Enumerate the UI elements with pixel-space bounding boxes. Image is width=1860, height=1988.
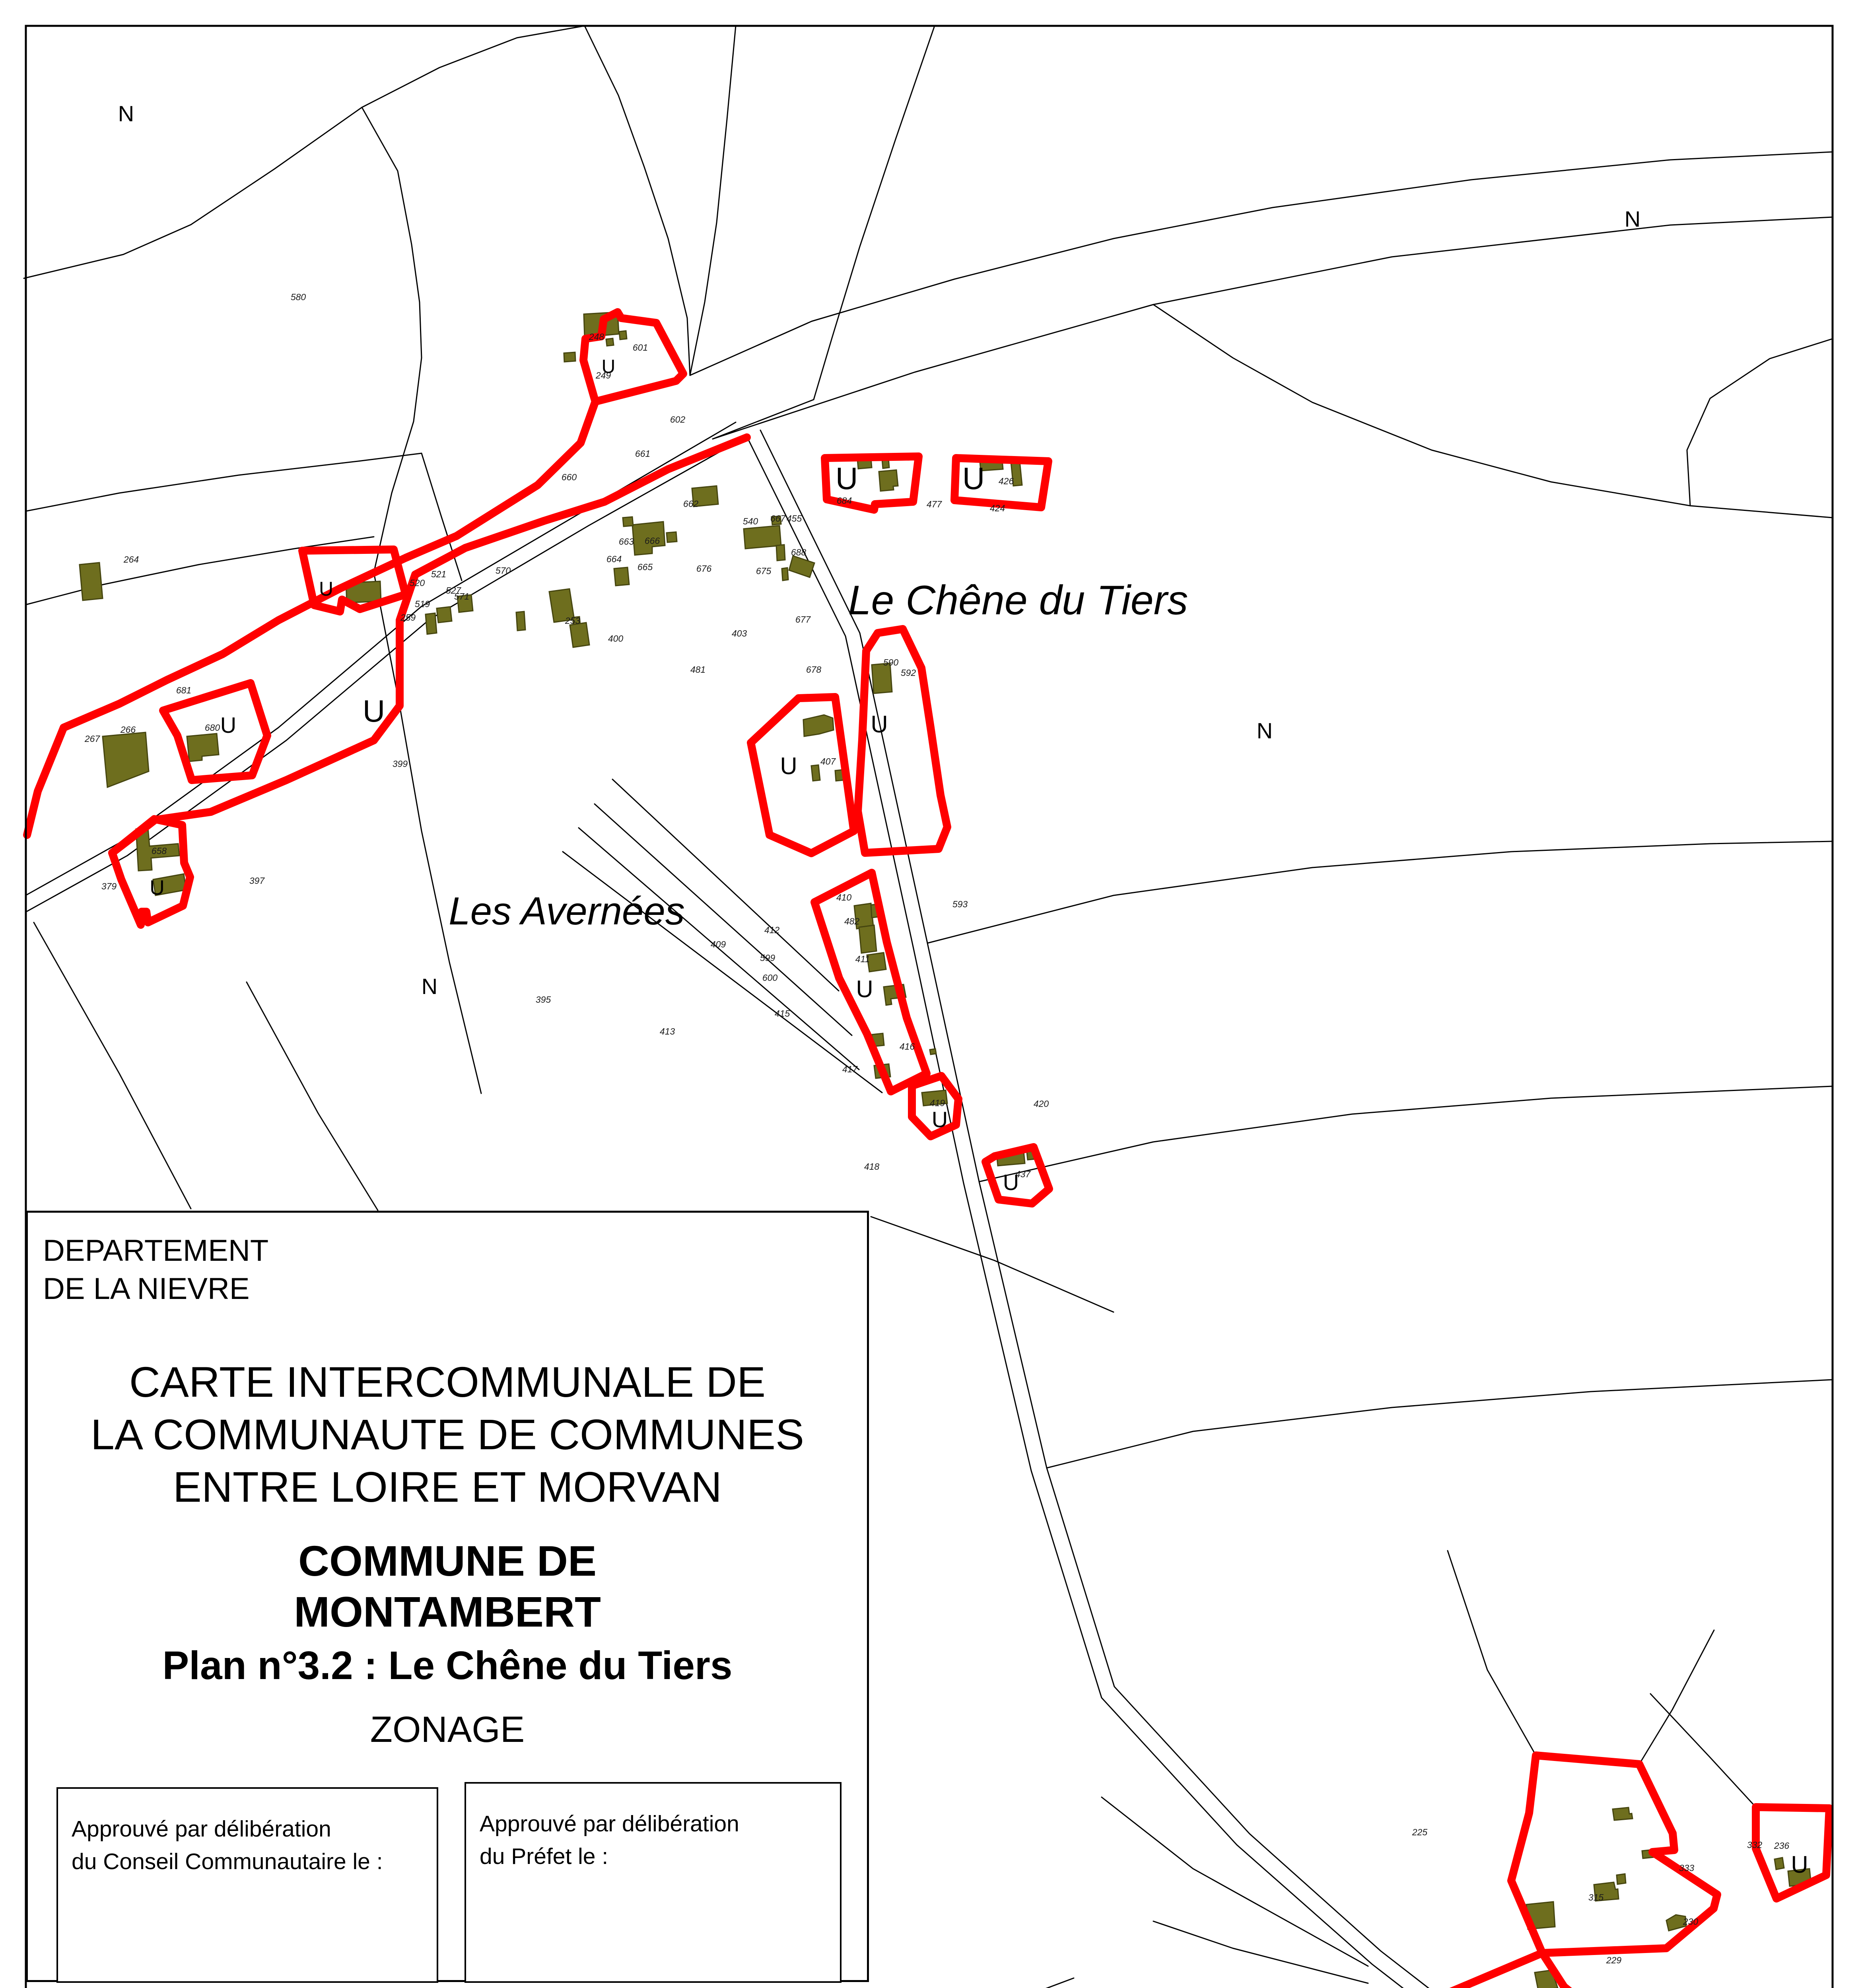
parcel-number: 267 bbox=[84, 734, 101, 744]
building bbox=[614, 567, 629, 586]
parcel-line bbox=[1650, 1694, 1756, 1807]
building bbox=[859, 925, 877, 953]
parcel-number: 412 bbox=[764, 925, 780, 935]
parcel-number: 665 bbox=[637, 562, 653, 572]
parcel-number: 678 bbox=[806, 664, 822, 675]
parcel-line bbox=[27, 453, 422, 511]
parcel-number: 570 bbox=[496, 565, 511, 576]
zone-u-letter: U bbox=[780, 753, 797, 779]
building bbox=[426, 613, 437, 634]
building bbox=[187, 734, 219, 761]
parcel-number: 662 bbox=[683, 499, 699, 509]
parcel-number: 593 bbox=[952, 899, 968, 909]
parcel-number: 424 bbox=[990, 503, 1005, 513]
parcel-line bbox=[927, 841, 1833, 943]
parcel-line bbox=[362, 107, 422, 573]
title-block: DEPARTEMENTDE LA NIEVRE CARTE INTERCOMMU… bbox=[26, 1211, 869, 1982]
building bbox=[811, 765, 820, 781]
plan-number-title: Plan n°3.2 : Le Chêne du Tiers bbox=[28, 1643, 867, 1689]
building bbox=[1774, 1858, 1784, 1870]
commune-title: COMMUNE DE MONTAMBERT bbox=[28, 1536, 867, 1637]
parcel-number: 676 bbox=[696, 563, 712, 574]
department-label: DEPARTEMENTDE LA NIEVRE bbox=[43, 1232, 268, 1308]
building bbox=[1613, 1807, 1633, 1820]
zone-u-letter: U bbox=[836, 461, 858, 496]
parcel-number: 520 bbox=[410, 578, 425, 588]
parcel-line bbox=[1153, 1921, 1368, 1983]
parcel-number: 688 bbox=[791, 547, 807, 557]
parcel-number: 248 bbox=[589, 332, 604, 342]
building bbox=[437, 607, 452, 623]
parcel-number: 397 bbox=[249, 876, 265, 886]
parcel-number: 677 bbox=[795, 614, 811, 625]
parcel-number: 680 bbox=[205, 722, 220, 733]
parcel-number: 590 bbox=[883, 657, 899, 668]
zone-u-letter: U bbox=[871, 711, 888, 738]
place-name-label: Les Avernées bbox=[449, 889, 685, 933]
approval-prefect-text: Approuvé par délibérationdu Préfet le : bbox=[480, 1807, 739, 1873]
parcel-number: 658 bbox=[152, 846, 167, 856]
zone-n-letter: N bbox=[1257, 718, 1273, 743]
building bbox=[879, 470, 898, 491]
parcel-number: 332 bbox=[1747, 1840, 1763, 1850]
parcel-line bbox=[612, 779, 839, 991]
parcel-line bbox=[247, 982, 378, 1210]
zone-boundary-line bbox=[112, 437, 747, 853]
building bbox=[619, 331, 627, 340]
zone-n-letter: N bbox=[422, 974, 437, 999]
building bbox=[1617, 1874, 1626, 1884]
parcel-number: 426 bbox=[999, 476, 1014, 486]
building bbox=[789, 556, 814, 577]
parcel-number: 481 bbox=[690, 664, 706, 675]
building bbox=[570, 623, 589, 647]
parcel-number: 409 bbox=[711, 939, 726, 949]
parcel-number: 379 bbox=[101, 881, 117, 891]
building bbox=[782, 568, 788, 580]
parcel-number: 667 bbox=[770, 513, 786, 524]
building bbox=[667, 532, 677, 542]
parcel-number: 455 bbox=[787, 513, 802, 524]
parcel-line bbox=[871, 1217, 1114, 1312]
parcel-line bbox=[690, 26, 736, 375]
parcel-number: 601 bbox=[633, 342, 648, 353]
place-name-label: Le Chêne du Tiers bbox=[848, 577, 1188, 623]
parcel-number: 416 bbox=[900, 1041, 915, 1052]
zone-n-letter: N bbox=[1051, 1984, 1067, 1988]
parcel-number: 230 bbox=[1683, 1916, 1699, 1927]
zone-u-letter: U bbox=[602, 356, 616, 377]
parcel-number: 521 bbox=[431, 569, 446, 579]
parcel-number: 399 bbox=[393, 759, 408, 769]
building bbox=[623, 517, 633, 526]
parcel-number: 681 bbox=[176, 685, 191, 695]
building bbox=[930, 1049, 936, 1054]
parcel-line bbox=[1153, 305, 1833, 518]
zone-boundary bbox=[112, 819, 190, 925]
parcel-line bbox=[1047, 1380, 1833, 1468]
parcel-line bbox=[979, 1086, 1833, 1182]
parcel-number: 664 bbox=[606, 554, 622, 564]
building bbox=[803, 715, 834, 736]
zonage-label: ZONAGE bbox=[28, 1709, 867, 1751]
zone-u-letter: U bbox=[150, 876, 165, 899]
zone-u-letter: U bbox=[319, 578, 333, 600]
zone-u-letter: U bbox=[1791, 1851, 1808, 1878]
parcel-number: 663 bbox=[619, 536, 634, 547]
zone-n-letter: N bbox=[118, 101, 134, 126]
building bbox=[103, 732, 149, 787]
zoning-map-page: 5802646026616602595205215715702534005275… bbox=[0, 0, 1860, 1988]
building bbox=[606, 338, 614, 346]
building bbox=[872, 663, 892, 693]
zone-u-letter: U bbox=[1003, 1170, 1019, 1195]
parcel-number: 229 bbox=[1606, 1955, 1622, 1965]
zone-boundary bbox=[858, 629, 947, 853]
parcel-number: 600 bbox=[762, 973, 778, 983]
building bbox=[516, 612, 525, 631]
parcel-line bbox=[713, 217, 1833, 439]
parcel-line bbox=[1448, 1551, 1536, 1755]
parcel-number: 684 bbox=[837, 495, 852, 506]
parcel-number: 315 bbox=[1588, 1892, 1604, 1903]
parcel-line bbox=[1639, 1630, 1714, 1764]
parcel-number: 540 bbox=[743, 516, 758, 526]
parcel-number: 418 bbox=[864, 1161, 880, 1172]
parcel-line bbox=[24, 26, 585, 278]
parcel-number: 602 bbox=[670, 414, 686, 425]
parcel-number: 411 bbox=[855, 954, 870, 964]
building bbox=[744, 526, 781, 549]
zone-u-letter: U bbox=[363, 693, 385, 728]
zone-u-letter: U bbox=[220, 712, 236, 738]
approval-box-prefect: Approuvé par délibérationdu Préfet le : bbox=[465, 1782, 842, 1983]
building bbox=[776, 545, 785, 561]
parcel-line bbox=[690, 152, 1833, 375]
parcel-number: 482 bbox=[844, 916, 860, 926]
parcel-number: 413 bbox=[660, 1026, 675, 1037]
parcel-number: 225 bbox=[1412, 1827, 1428, 1837]
parcel-number: 599 bbox=[760, 953, 775, 963]
parcel-number: 527 bbox=[446, 585, 462, 596]
parcel-number: 417 bbox=[842, 1064, 858, 1074]
parcel-number: 420 bbox=[1034, 1099, 1049, 1109]
parcel-number: 519 bbox=[415, 599, 430, 609]
parcel-number: 236 bbox=[1774, 1840, 1790, 1851]
parcel-number: 675 bbox=[756, 566, 772, 576]
main-title: CARTE INTERCOMMUNALE DE LA COMMUNAUTE DE… bbox=[28, 1356, 867, 1513]
building bbox=[80, 563, 103, 600]
parcel-number: 266 bbox=[120, 724, 136, 735]
parcel-line bbox=[713, 400, 814, 439]
building bbox=[564, 352, 575, 362]
parcel-number: 400 bbox=[608, 633, 624, 644]
parcel-number: 253 bbox=[565, 615, 581, 626]
parcel-number: 259 bbox=[400, 612, 416, 623]
parcel-line bbox=[34, 922, 191, 1209]
approval-box-council: Approuvé par délibérationdu Conseil Comm… bbox=[56, 1787, 438, 1983]
parcel-line bbox=[1102, 1797, 1368, 1966]
parcel-number: 264 bbox=[123, 554, 139, 565]
parcel-number: 395 bbox=[536, 994, 551, 1005]
parcel-number: 415 bbox=[775, 1008, 790, 1019]
parcel-number: 403 bbox=[732, 628, 747, 639]
zone-n-letter: N bbox=[1625, 206, 1640, 231]
parcel-number: 580 bbox=[291, 292, 306, 302]
parcel-number: 666 bbox=[645, 536, 660, 546]
zone-u-letter: U bbox=[962, 461, 985, 496]
parcel-number: 592 bbox=[901, 668, 916, 678]
parcel-number: 477 bbox=[927, 499, 943, 509]
zone-u-letter: U bbox=[856, 976, 873, 1002]
parcel-line bbox=[814, 26, 935, 400]
zone-u-letter: U bbox=[932, 1107, 948, 1132]
parcel-number: 333 bbox=[1679, 1863, 1695, 1873]
parcel-number: 407 bbox=[820, 756, 836, 767]
parcel-number: 661 bbox=[635, 448, 650, 459]
parcel-number: 660 bbox=[562, 472, 577, 482]
parcel-number: 410 bbox=[836, 892, 852, 903]
approval-council-text: Approuvé par délibérationdu Conseil Comm… bbox=[72, 1813, 383, 1878]
parcel-line bbox=[1687, 339, 1833, 506]
